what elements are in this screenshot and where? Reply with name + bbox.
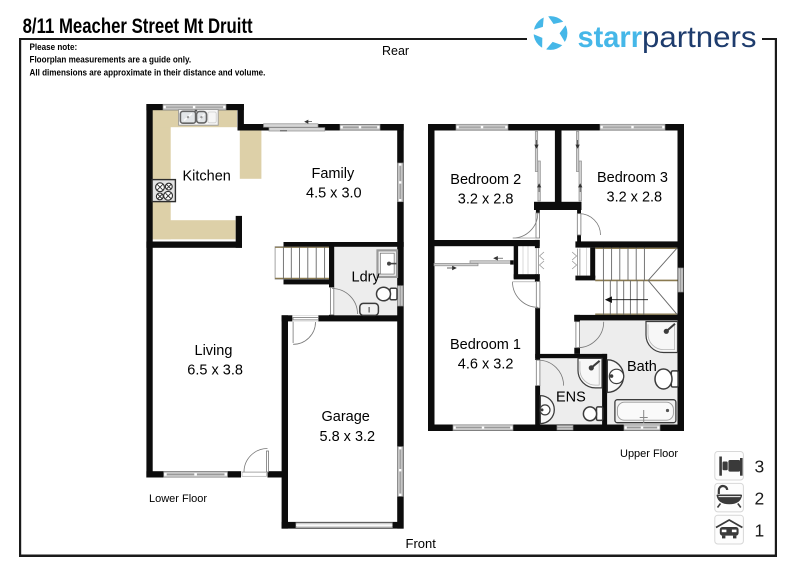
svg-text:Garage: Garage [322,409,370,425]
svg-text:Upper Floor: Upper Floor [620,448,678,460]
svg-text:Bedroom 2: Bedroom 2 [450,172,521,188]
svg-text:3.2 x 2.8: 3.2 x 2.8 [607,190,663,206]
svg-text:All dimensions are approximate: All dimensions are approximate in their … [30,67,266,78]
svg-text:Bedroom 1: Bedroom 1 [450,337,521,353]
svg-text:Bedroom 3: Bedroom 3 [597,170,668,186]
svg-text:Floorplan measurements are a g: Floorplan measurements are a guide only. [30,54,192,65]
svg-text:5.8 x 3.2: 5.8 x 3.2 [320,429,376,445]
svg-text:8/11 Meacher Street Mt Druitt: 8/11 Meacher Street Mt Druitt [23,15,254,38]
svg-text:Ldry: Ldry [352,270,381,286]
svg-text:3.2 x 2.8: 3.2 x 2.8 [458,192,514,208]
svg-text:4.5 x 3.0: 4.5 x 3.0 [306,186,362,202]
svg-text:starr: starr [578,21,643,54]
svg-text:1: 1 [755,521,765,541]
svg-text:ENS: ENS [556,390,586,406]
svg-text:3: 3 [755,457,765,477]
svg-text:Rear: Rear [382,44,409,58]
svg-text:6.5 x 3.8: 6.5 x 3.8 [187,363,243,379]
svg-text:Family: Family [312,166,355,182]
svg-text:Please note:: Please note: [30,41,78,52]
svg-text:partners: partners [642,21,757,54]
svg-text:4.6 x 3.2: 4.6 x 3.2 [458,357,514,373]
svg-text:Kitchen: Kitchen [183,169,231,185]
svg-text:Front: Front [406,536,437,551]
svg-text:2: 2 [755,489,765,509]
svg-text:Lower Floor: Lower Floor [149,493,207,505]
svg-text:Living: Living [195,343,233,359]
svg-text:Bath: Bath [627,359,657,375]
